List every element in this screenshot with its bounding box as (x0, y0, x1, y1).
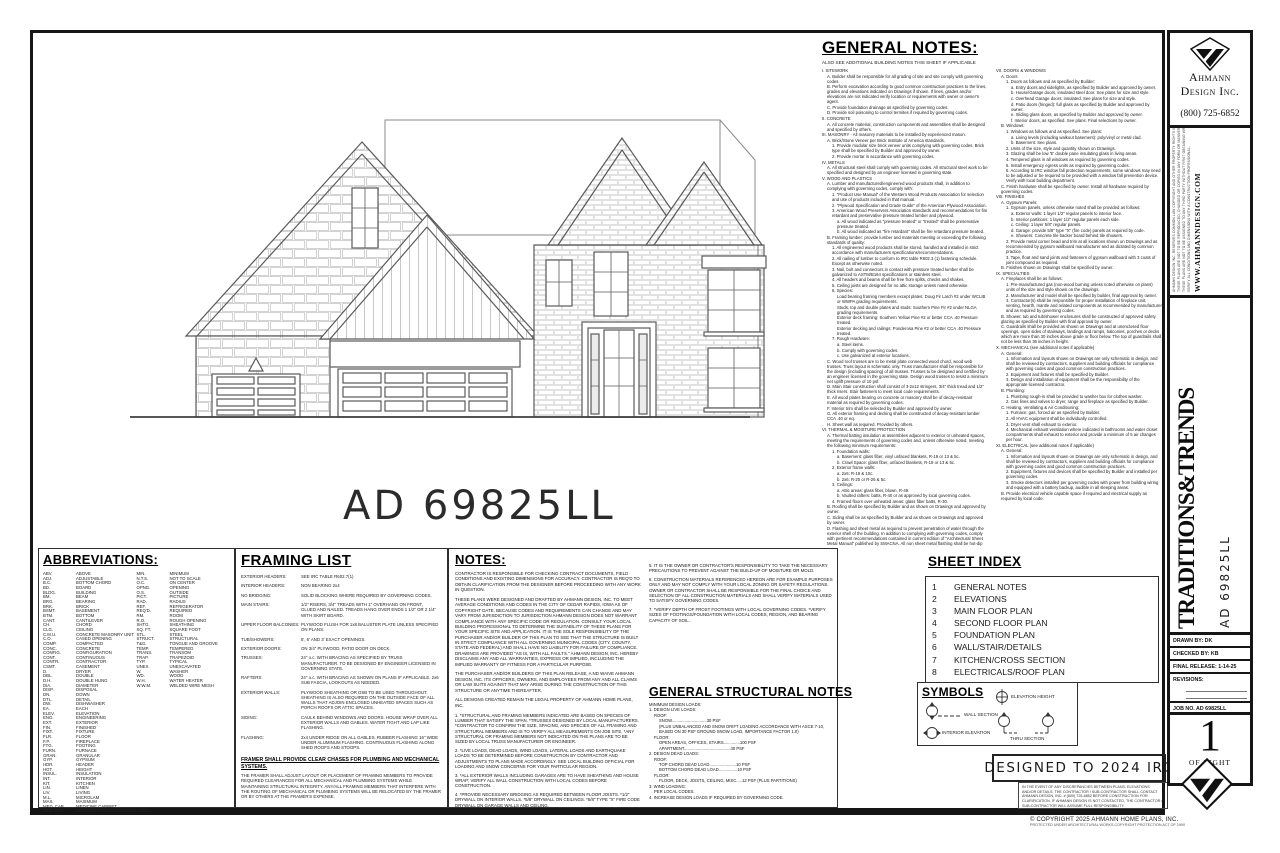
company-name: Ahmann Design Inc. (1170, 71, 1250, 99)
abbreviation-row: W.W.M.WELDED WIRE MESH (137, 684, 231, 689)
plan-sheet: AD 69825LL GENERAL NOTES: ALSO SEE ADDIT… (30, 30, 1165, 815)
sheet-number: 1 (1170, 715, 1250, 757)
sheet-index-title: SHEET INDEX (928, 554, 1021, 569)
structural-notes-title: GENERAL STRUCTURAL NOTES (649, 685, 835, 699)
notes-paragraphs: CONTRACTOR IS RESPONSIBLE FOR CHECKING C… (455, 571, 641, 708)
general-notes-title: GENERAL NOTES: (822, 38, 1162, 58)
revision-blank-line (1186, 685, 1247, 692)
legal-line: THESE PLANS ARE NOT TO BE REPRODUCED, CH… (1177, 132, 1181, 292)
framing-list-row: UPPER FLOOR BALCONIES:PLYWOOD FLUSH FOR … (241, 622, 443, 632)
upper-right-window (702, 256, 766, 336)
framing-list-row: RAFTERS:24" o.c. WITH BRACING AS SHOWN O… (241, 675, 443, 685)
sheet-index-row: 4SECOND FLOOR PLAN (932, 617, 1152, 629)
thru-section-label: THRU SECTION (1010, 736, 1044, 741)
abbreviations-panel: ABBREVIATIONS: ABV.ABOVEADJ.ADJUSTABLEB.… (38, 548, 235, 808)
job-number: JOB NO. AD 69825LL (1170, 701, 1250, 715)
sheet-index-row: 7KITCHEN/CROSS SECTION (932, 654, 1152, 666)
notes-items: 1. *STRUCTURAL AND FRAMING MEMBERS INDIC… (455, 713, 641, 808)
sheet-index-row: 8ELECTRICALS/ROOF PLAN (932, 666, 1152, 678)
notes-item: 7. *VERIFY DEPTH OF FROST FOOTINGS WITH … (649, 607, 833, 623)
bay-window (594, 252, 628, 316)
sheet-index-row: 3MAIN FLOOR PLAN (932, 605, 1152, 617)
sheet-index-row: 5FOUNDATION PLAN (932, 629, 1152, 641)
garage-door-double (338, 369, 512, 417)
sheet-index-box: 1GENERAL NOTES2ELEVATIONS3MAIN FLOOR PLA… (925, 576, 1159, 683)
framing-list-row: TRUSSES:24" o.c. WITH BRACING AS SPECIFI… (241, 655, 443, 671)
sheet-index-row: 6WALL/STAIR/DETAILS (932, 641, 1152, 653)
notes-item: 5. IT IS THE OWNER OR CONTRACTOR'S RESPO… (649, 563, 833, 574)
notes-item: 3. *ALL EXTERIOR WALLS INCLUDING GARAGES… (455, 773, 641, 789)
revisions-label: REVISIONS: (1170, 674, 1250, 685)
checked-by: CHECKED BY: KB (1170, 648, 1250, 661)
plan-number-label: AD 69825LL (343, 483, 616, 529)
general-notes-col1: I. SITEWORKA. Builder shall be responsib… (822, 68, 988, 546)
final-release: FINAL RELEASE: 1-14-25 (1170, 661, 1250, 674)
framing-list-row: SIDING:CAULK BEHIND WINDOWS AND DOORS. H… (241, 715, 443, 731)
notes-paragraph: ALL DESIGNS CREATED REMAIN THE LEGAL PRO… (455, 697, 641, 708)
garage-header-band (330, 341, 520, 367)
house-elevation-drawing (90, 60, 770, 430)
sheet-index-row: 1GENERAL NOTES (932, 581, 1152, 593)
company-box: Ahmann Design Inc. (800) 725-6852 (1170, 33, 1250, 128)
legal-line: THESE PLANS ARE NOT TO BE ASSIGNED TO AN… (1182, 132, 1186, 292)
framing-list-rows: EXTERIOR HEADERS:SEE IRC TABLE R602.7(1)… (236, 574, 447, 750)
framing-list-row: FLASHING:2x4 UNDER RIDGE ON ALL GABLES. … (241, 735, 443, 751)
legal-line: VERIFY ALL CONDITIONS AND DIMENSIONS WIT… (1187, 132, 1191, 292)
interior-elevation-label: INTERIOR ELEVATION (942, 730, 990, 735)
drawing-info-box: DRAWN BY: DK CHECKED BY: KB FINAL RELEAS… (1170, 635, 1250, 715)
framing-list-footer: FRAMER SHALL PROVIDE CLEAR CHASES FOR PL… (241, 757, 441, 799)
revision-blank-line (1186, 692, 1247, 699)
general-notes-subtitle: ALSO SEE ADDITIONAL BUILDING NOTES THIS … (822, 60, 1162, 65)
general-notes-col2: VII. DOORS & WINDOWSA. Doors1. Doors as … (996, 68, 1162, 546)
structural-notes-lines: MINIMUM DESIGN LOADS:1. DESIGN LIVE LOAD… (649, 702, 835, 800)
notes-title: NOTES: (455, 552, 641, 567)
legal-lines: AHMANN DESIGN INC. RESERVES COMMON LAW C… (1172, 132, 1191, 292)
website-link[interactable]: WWW.AHMANNDESIGN.COM (1193, 132, 1202, 292)
framing-list-panel: FRAMING LIST EXTERIOR HEADERS:SEE IRC TA… (235, 548, 448, 808)
general-structural-notes: GENERAL STRUCTURAL NOTES MINIMUM DESIGN … (649, 685, 835, 800)
notes-left-column: NOTES: CONTRACTOR IS RESPONSIBLE FOR CHE… (455, 552, 641, 811)
general-notes-panel: GENERAL NOTES: ALSO SEE ADDITIONAL BUILD… (822, 38, 1162, 65)
framer-chases-text: THE FRAMER SHALL ADJUST LAYOUT OR PLACEM… (241, 773, 441, 799)
notes-paragraph: THESE PLANS WERE DESIGNED AND DRAFTED BY… (455, 597, 641, 667)
notes-item: 4. *PROVIDE NECESSARY BRIDGING AS REQUIR… (455, 792, 641, 808)
sheet-index-row: 2ELEVATIONS (932, 593, 1152, 605)
wall-section-label: WALL SECTION (964, 712, 998, 717)
symbols-panel: SYMBOLS (917, 682, 1078, 746)
second-floor-window (546, 260, 572, 306)
legal-line: AHMANN DESIGN INC. RESERVES COMMON LAW C… (1172, 132, 1176, 292)
notes-item: 1. *STRUCTURAL AND FRAMING MEMBERS INDIC… (455, 713, 641, 745)
entry-door (582, 322, 656, 417)
abbreviations-right-column: MIN.MINIMUMN.T.S.NOT TO SCALEO.C.ON CENT… (137, 572, 231, 814)
ahmann-logo-bottom-icon (1181, 758, 1233, 810)
framing-list-row: MAIN STAIRS:1/2" RISERS, 3/4" TREADS WIT… (241, 602, 443, 618)
discrepancy-note: IN THE EVENT OF ANY DISCREPANCIES BETWEE… (1018, 782, 1168, 809)
framing-list-row: TUB/SHOWERS:5', 6' AND 3' EXACT OPENINGS… (241, 637, 443, 642)
plan-number-vertical: AD 69825LL (1218, 408, 1232, 628)
drawn-by: DRAWN BY: DK (1170, 635, 1250, 648)
series-box: TRADITIONS&TRENDS AD 69825LL (1170, 298, 1250, 635)
ahmann-logo-icon (1190, 37, 1230, 71)
abbreviations-left-column: ABV.ABOVEADJ.ADJUSTABLEB.C.BOTTOM CHORDB… (43, 572, 137, 814)
framing-list-row: INTERIOR HEADERS:NON BEARING 2x4 (241, 583, 443, 588)
abbreviation-row: MFR./MFC.MANUFACTURER/MANUFACTURED (43, 809, 137, 814)
notes-right-column: 5. IT IS THE OWNER OR CONTRACTOR'S RESPO… (649, 563, 833, 626)
notes-item: 2. *LIVE LOADS, DEAD LOADS, WIND LOADS, … (455, 748, 641, 769)
company-phone: (800) 725-6852 (1170, 109, 1250, 119)
notes-paragraph: CONTRACTOR IS RESPONSIBLE FOR CHECKING C… (455, 571, 641, 593)
series-name: TRADITIONS&TRENDS (1174, 304, 1200, 629)
legal-box: AHMANN DESIGN INC. RESERVES COMMON LAW C… (1170, 128, 1250, 298)
lower-right-window (704, 348, 764, 412)
page: { "sheet": { "plan_label": "AD 69825LL" … (0, 0, 1280, 853)
elevation-height-label: ELEVATION HEIGHT (1011, 694, 1055, 699)
title-block-strip: Ahmann Design Inc. (800) 725-6852 AHMANN… (1167, 30, 1253, 786)
notes-item: 6. CONSTRUCTION MATERIALS REFERENCED HER… (649, 577, 833, 603)
notes-paragraph: THE PURCHASER AND/OR BUILDERS OF THIS PL… (455, 671, 641, 693)
framing-list-row: NO BRIDGING:SOLID BLOCKING WHERE REQUIRE… (241, 593, 443, 598)
framer-chases-heading: FRAMER SHALL PROVIDE CLEAR CHASES FOR PL… (241, 757, 441, 770)
copyright-subtext: PROTECTED UNDER ARCHITECTURAL WORKS COPY… (1030, 823, 1185, 827)
notes-items-right: 5. IT IS THE OWNER OR CONTRACTOR'S RESPO… (649, 563, 833, 623)
abbreviations-title: ABBREVIATIONS: (43, 552, 234, 567)
framing-list-row: EXTERIOR WALLS:PLYWOOD SHEATHING OR OSB … (241, 690, 443, 711)
copyright-line: © COPYRIGHT 2025 AHMANN HOME PLANS, INC.… (1030, 817, 1185, 827)
notes-panel: NOTES: CONTRACTOR IS RESPONSIBLE FOR CHE… (448, 548, 838, 808)
designed-irc-box: DESIGNED TO 2024 IRC (992, 754, 1166, 782)
framing-list-row: EXTERIOR DOORS:ON 3/4" PLYWOOD, PATIO DO… (241, 646, 443, 651)
framing-list-title: FRAMING LIST (241, 552, 447, 569)
framing-list-row: EXTERIOR HEADERS:SEE IRC TABLE R602.7(1) (241, 574, 443, 579)
